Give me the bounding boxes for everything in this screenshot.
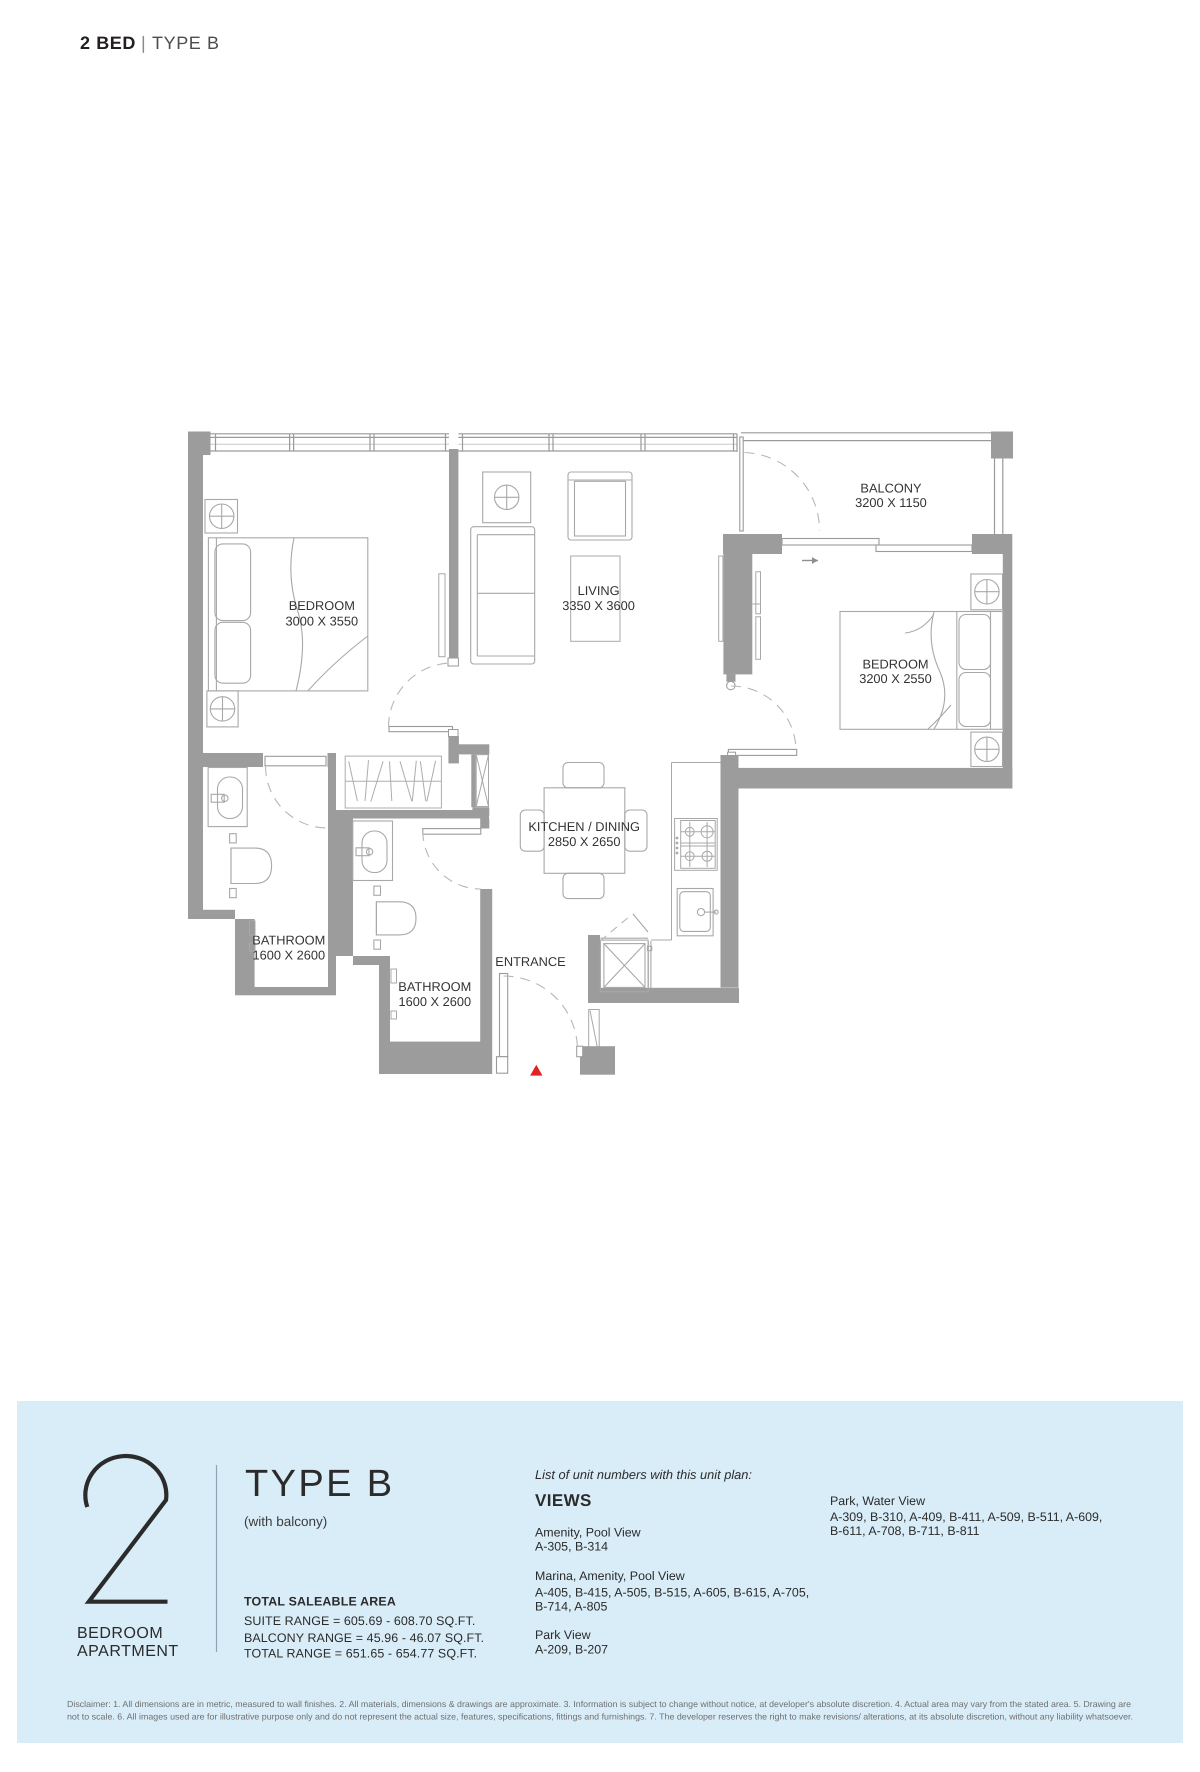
svg-text:|: | [141, 33, 146, 53]
svg-text:Park View: Park View [535, 1628, 591, 1642]
svg-text:not to scale. 6. All images us: not to scale. 6. All images used are for… [67, 1712, 1133, 1722]
svg-text:2850 X 2650: 2850 X 2650 [548, 834, 621, 849]
svg-text:TYPE B: TYPE B [245, 1463, 395, 1505]
svg-text:A-305, B-314: A-305, B-314 [535, 1540, 608, 1554]
svg-text:2 BED: 2 BED [80, 33, 136, 53]
svg-text:1600 X 2600: 1600 X 2600 [253, 947, 326, 962]
svg-text:BALCONY RANGE = 45.96 - 46.07: BALCONY RANGE = 45.96 - 46.07 SQ.FT. [244, 1631, 484, 1645]
svg-text:TOTAL RANGE = 651.65 - 654.77: TOTAL RANGE = 651.65 - 654.77 SQ.FT. [244, 1647, 477, 1661]
svg-text:3000 X 3550: 3000 X 3550 [286, 613, 359, 628]
svg-text:B-714, A-805: B-714, A-805 [535, 1600, 607, 1614]
svg-text:TYPE B: TYPE B [152, 33, 220, 53]
svg-text:3200 X 1150: 3200 X 1150 [855, 495, 927, 510]
svg-text:3350 X 3600: 3350 X 3600 [562, 598, 635, 613]
svg-text:ENTRANCE: ENTRANCE [495, 954, 565, 969]
svg-text:BATHROOM: BATHROOM [398, 979, 471, 994]
svg-text:B-611, A-708, B-711, B-811: B-611, A-708, B-711, B-811 [830, 1524, 980, 1538]
svg-text:Disclaimer: 1. All dimensions: Disclaimer: 1. All dimensions are in met… [67, 1699, 1131, 1709]
svg-text:A-209, B-207: A-209, B-207 [535, 1643, 608, 1657]
svg-text:A-405, B-415, A-505, B-515, A-: A-405, B-415, A-505, B-515, A-605, B-615… [535, 1586, 809, 1600]
svg-text:BALCONY: BALCONY [860, 481, 922, 496]
svg-text:KITCHEN / DINING: KITCHEN / DINING [528, 819, 640, 834]
svg-text:List of unit numbers with this: List of unit numbers with this unit plan… [535, 1467, 752, 1482]
svg-text:Marina, Amenity, Pool View: Marina, Amenity, Pool View [535, 1569, 685, 1583]
svg-text:Park, Water View: Park, Water View [830, 1494, 925, 1508]
svg-text:BEDROOM: BEDROOM [862, 657, 928, 672]
svg-text:1600 X 2600: 1600 X 2600 [399, 994, 472, 1009]
svg-text:BEDROOM: BEDROOM [289, 598, 355, 613]
svg-text:3200 X 2550: 3200 X 2550 [859, 671, 932, 686]
svg-text:A-309, B-310, A-409, B-411, A-: A-309, B-310, A-409, B-411, A-509, B-511… [830, 1510, 1102, 1524]
svg-text:(with balcony): (with balcony) [244, 1514, 327, 1529]
svg-text:SUITE RANGE = 605.69 - 608.70: SUITE RANGE = 605.69 - 608.70 SQ.FT. [244, 1614, 475, 1628]
svg-text:BEDROOM: BEDROOM [77, 1625, 163, 1642]
svg-text:APARTMENT: APARTMENT [77, 1643, 179, 1660]
svg-text:TOTAL SALEABLE AREA: TOTAL SALEABLE AREA [244, 1595, 396, 1609]
svg-text:BATHROOM: BATHROOM [252, 933, 325, 948]
svg-text:VIEWS: VIEWS [535, 1491, 592, 1510]
svg-text:LIVING: LIVING [578, 583, 620, 598]
svg-text:Amenity, Pool View: Amenity, Pool View [535, 1526, 641, 1540]
